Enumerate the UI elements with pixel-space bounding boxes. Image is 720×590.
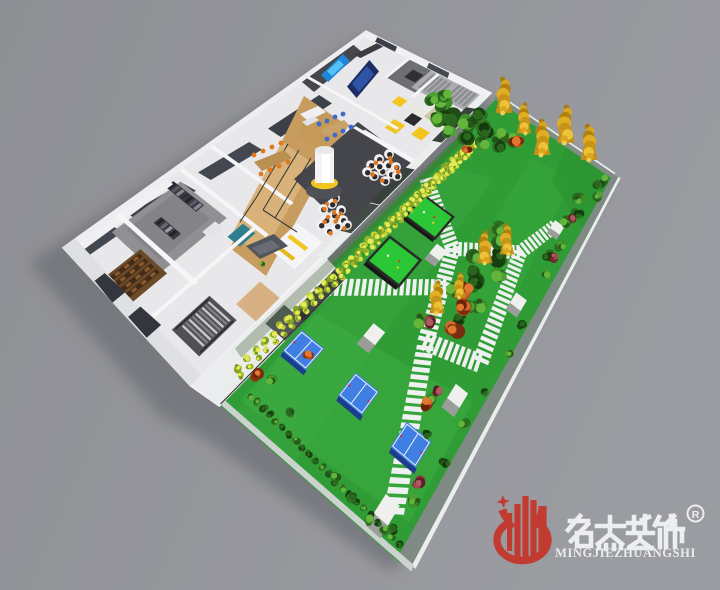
svg-text:R: R <box>692 509 700 521</box>
svg-text:MINGJIEZHUANGSHI: MINGJIEZHUANGSHI <box>555 546 696 560</box>
